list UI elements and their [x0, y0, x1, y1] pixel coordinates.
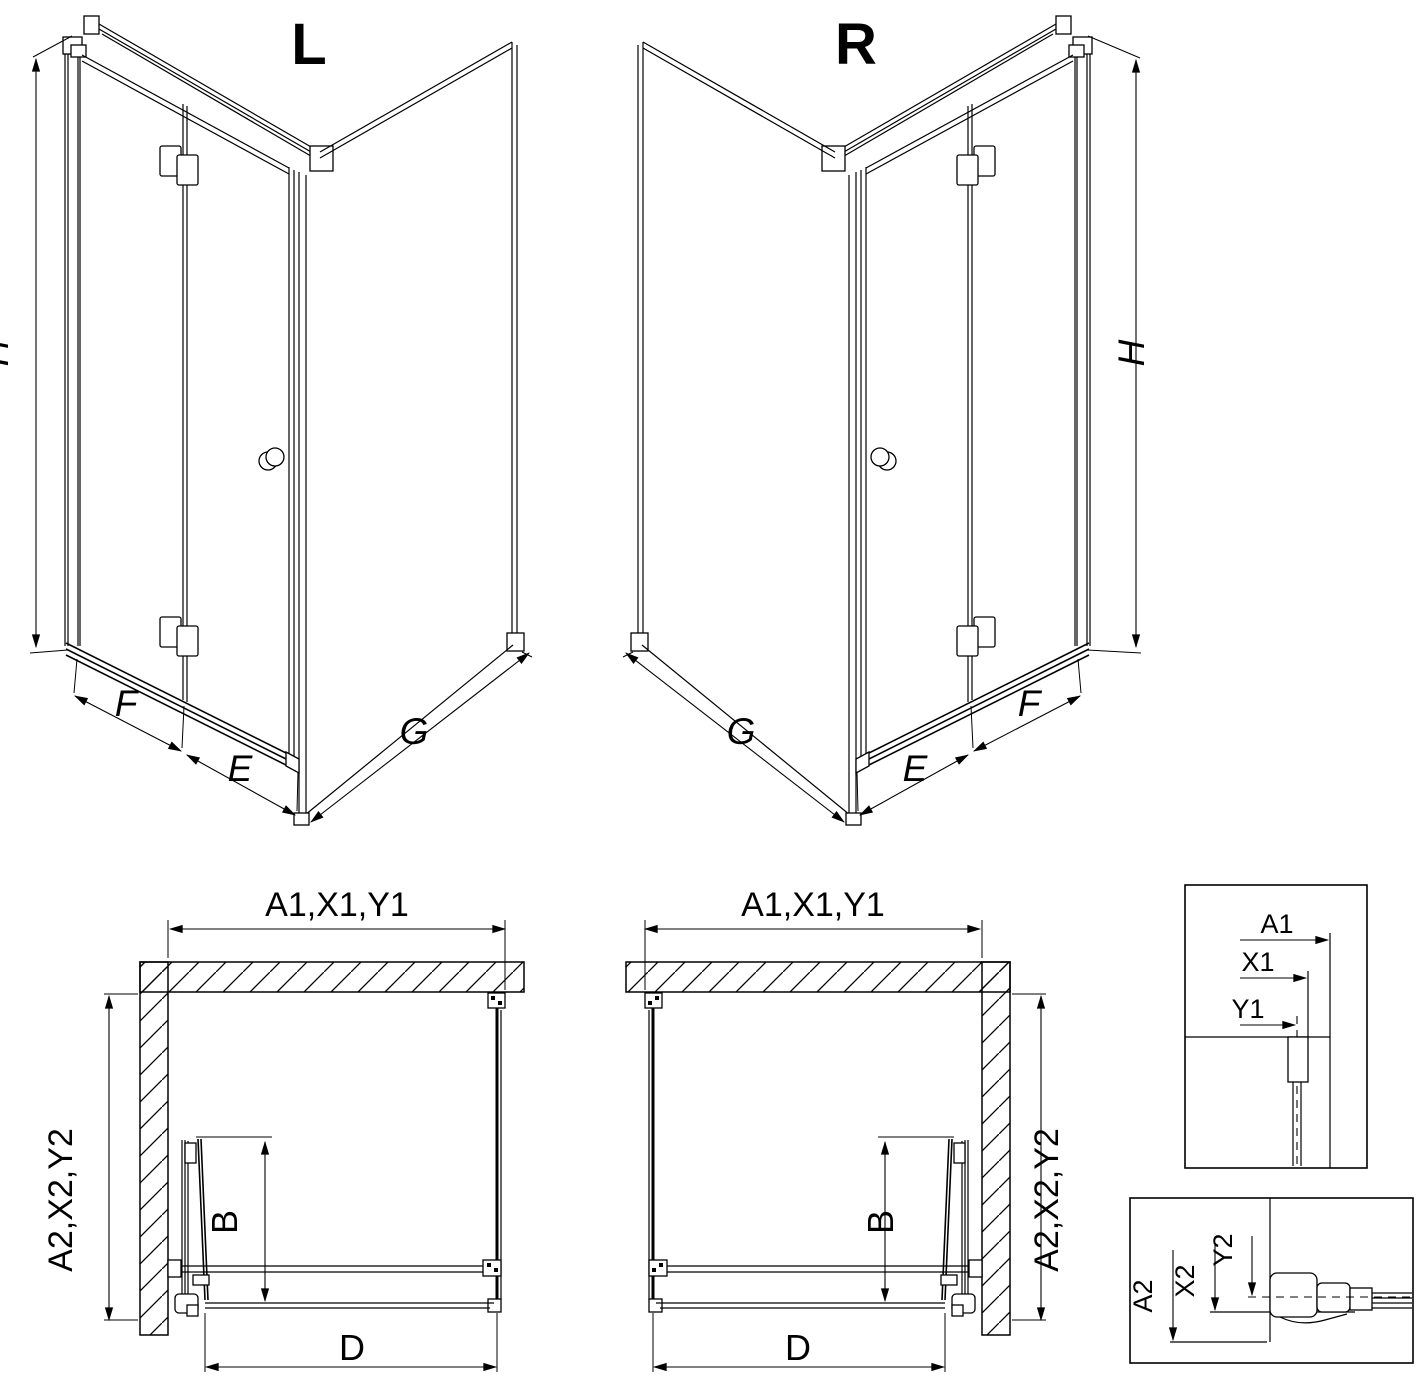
plan-left-width-label: A1,X1,Y1 — [265, 886, 409, 924]
iso-right-fixed-label: F — [1018, 683, 1043, 724]
iso-right-height-label: H — [1111, 339, 1152, 366]
iso-right-variant-label: R — [835, 12, 877, 77]
plan-right-depth-label: A2,X2,Y2 — [1028, 1128, 1066, 1272]
path-shape — [30, 36, 532, 811]
path-shape — [623, 36, 1141, 811]
shower-enclosure-technical-drawing: L H F E G R H F E G A1,X1,Y1 — [0, 0, 1426, 1397]
plan-right-side-wall — [982, 962, 1010, 1335]
rect-shape — [1270, 1273, 1317, 1317]
iso-right-view: R H F E G — [623, 12, 1152, 825]
iso-left-fixed-label: F — [115, 683, 140, 724]
iso-right-dimensions — [623, 36, 1141, 822]
detail-width-x1-label: X1 — [1241, 947, 1274, 977]
iso-left-variant-label: L — [291, 12, 326, 77]
plan-left-entry-label: B — [204, 1210, 245, 1234]
iso-right-side-label: G — [727, 711, 756, 752]
plan-right-back-wall — [626, 962, 1010, 992]
plan-right-enclosure — [645, 993, 982, 1316]
plan-right-front-label: D — [785, 1327, 811, 1368]
iso-left-door-label: E — [228, 748, 254, 789]
plan-right-view: A1,X1,Y1 A2,X2,Y2 B D — [626, 886, 1066, 1372]
plan-right-entry-label: B — [860, 1210, 901, 1234]
plan-left-front-label: D — [339, 1327, 365, 1368]
plan-left-view: A1,X1,Y1 A2,X2,Y2 B D — [42, 886, 524, 1372]
iso-left-dimensions — [30, 36, 532, 822]
plan-left-enclosure — [168, 993, 505, 1316]
rect-shape — [1288, 1037, 1308, 1082]
path-shape — [1293, 1082, 1301, 1166]
detail-width-y1-label: Y1 — [1231, 994, 1264, 1024]
detail-depth-y2-label: Y2 — [1208, 1233, 1238, 1266]
detail-depth-view: A2 X2 Y2 — [1128, 1198, 1413, 1363]
detail-width-view: A1 X1 Y1 — [1185, 885, 1367, 1168]
iso-left-view: L H F E G — [0, 12, 532, 825]
plan-right-width-label: A1,X1,Y1 — [741, 886, 885, 924]
detail-depth-a2-label: A2 — [1128, 1279, 1158, 1312]
plan-left-depth-label: A2,X2,Y2 — [42, 1128, 80, 1272]
plan-left-side-wall — [140, 962, 168, 1335]
iso-left-height-label: H — [0, 339, 16, 366]
iso-right-door-label: E — [903, 748, 929, 789]
detail-depth-x2-label: X2 — [1170, 1264, 1200, 1297]
detail-width-a1-label: A1 — [1260, 909, 1293, 939]
technical-drawing-canvas: L H F E G R H F E G A1,X1,Y1 — [0, 0, 1426, 1397]
iso-left-side-label: G — [400, 711, 429, 752]
path-shape — [1372, 1293, 1412, 1308]
rect-shape — [1350, 1288, 1372, 1310]
plan-left-back-wall — [140, 962, 524, 992]
